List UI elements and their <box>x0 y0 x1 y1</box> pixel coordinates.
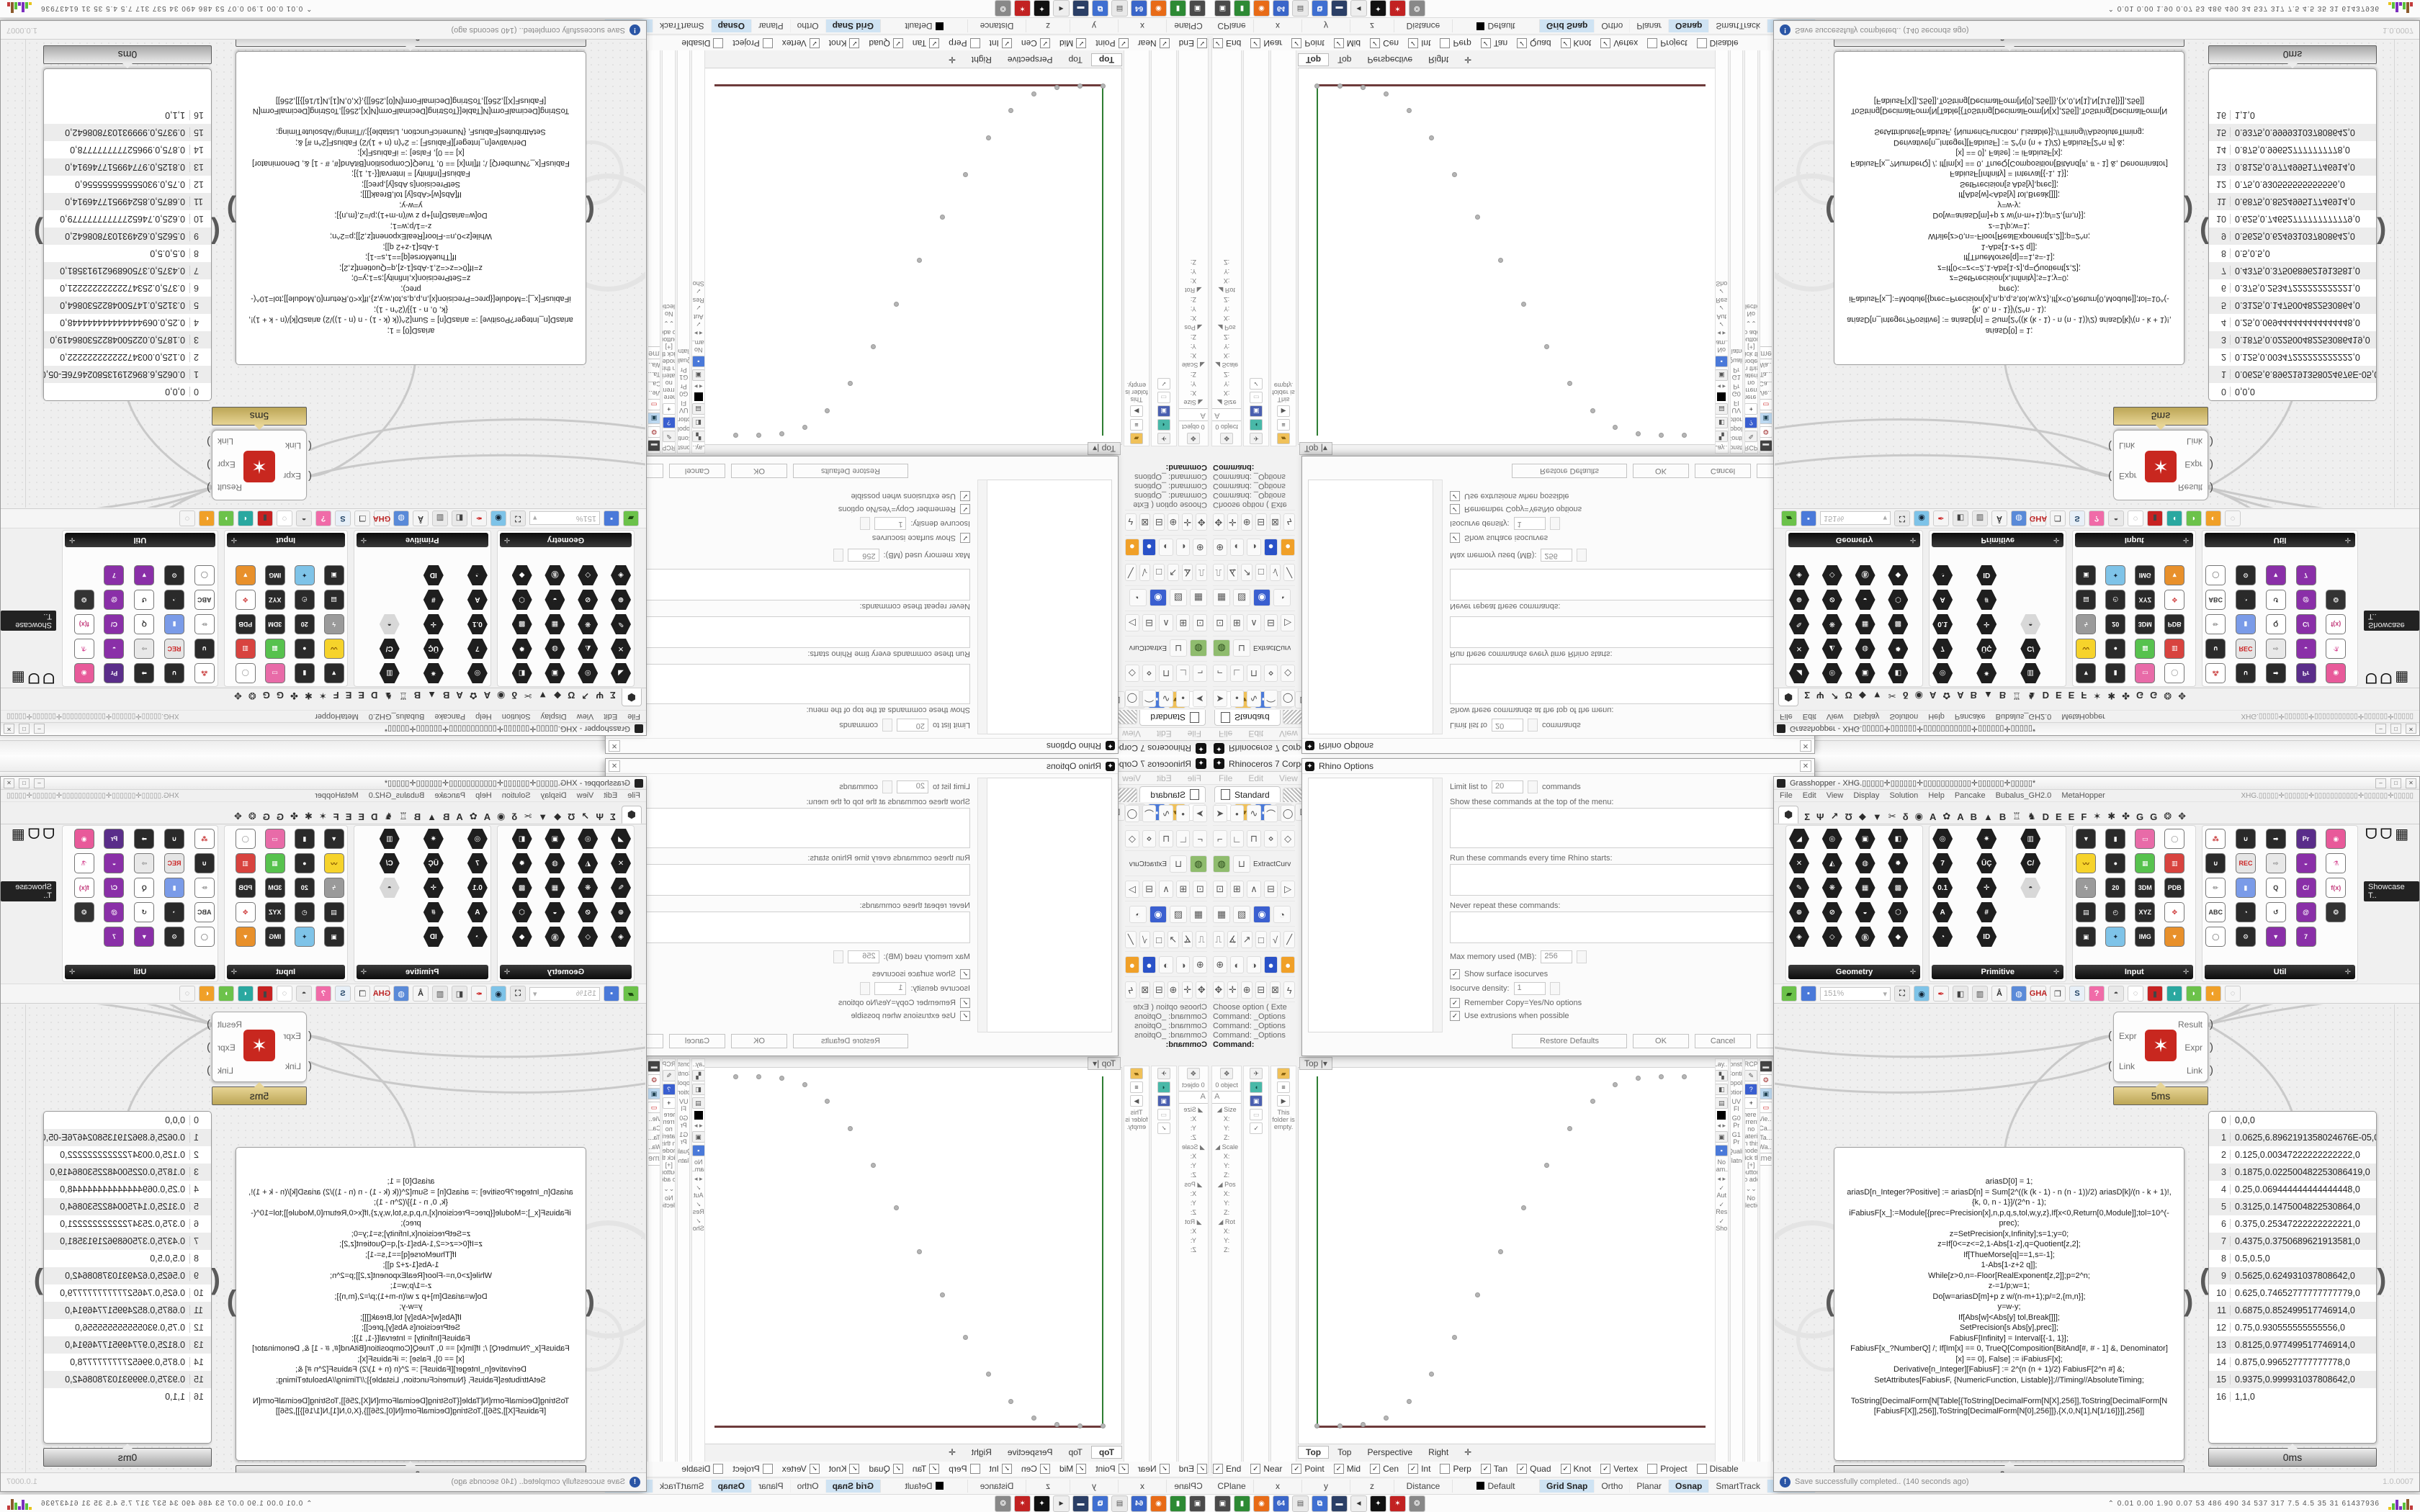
tab-plugin-mountain[interactable]: ▲ <box>1983 688 1994 702</box>
layer-list-icon[interactable]: ▤ <box>1715 403 1728 415</box>
use-extrusions-checkbox[interactable]: ✓ <box>960 1011 970 1021</box>
zoom-selected-icon[interactable]: ⊠ <box>1270 513 1281 531</box>
geometry-icon[interactable]: ◈ <box>1789 927 1809 947</box>
cancel-button[interactable]: Cancel <box>1695 464 1751 478</box>
corner-tool-icon[interactable]: ∟ <box>1230 830 1245 847</box>
primitive-icon[interactable]: ▥ <box>2020 829 2040 849</box>
line-dim-icon[interactable]: ╱ <box>1125 931 1137 948</box>
graph-mapper-icon[interactable]: 〰 <box>324 639 344 659</box>
panel-grip-close[interactable]: ) <box>34 216 43 248</box>
primitive-number-icon[interactable]: 7 <box>467 853 488 873</box>
undo-icon[interactable]: ↺ <box>134 902 154 922</box>
display-settings-icon[interactable]: ▬ <box>1072 1 1089 17</box>
open-document-icon[interactable]: ▰ <box>623 510 639 526</box>
fabius-data-point[interactable] <box>963 172 968 177</box>
camera-box-icon[interactable]: ▥ <box>1972 986 1988 1002</box>
cluster-icon[interactable]: ◯ <box>2205 565 2226 585</box>
new-viewport-icon[interactable]: ✛ <box>1457 1446 1479 1458</box>
graph-mapper-icon[interactable]: 〰 <box>2076 639 2096 659</box>
scribble-icon[interactable]: ✏ <box>2205 878 2226 898</box>
goggles-icon[interactable]: ᗜ <box>2380 827 2393 842</box>
section-size[interactable]: ◢ Size <box>1183 1106 1203 1113</box>
spiral-export-icon[interactable]: @ <box>2296 902 2316 922</box>
checkbox-icon[interactable]: ✓ <box>1481 1464 1491 1474</box>
fabius-data-point[interactable] <box>1544 344 1549 349</box>
checkbox-icon[interactable]: ✓ <box>1408 38 1418 48</box>
geometry-icon[interactable]: ◧ <box>512 829 532 849</box>
checkbox-icon[interactable]: ✓ <box>1002 1464 1012 1474</box>
name-box[interactable]: rame <box>647 346 661 359</box>
fabius-data-point[interactable] <box>1407 1399 1412 1404</box>
checkbox-icon[interactable]: ✓ <box>1160 38 1170 48</box>
sphere-dark-icon[interactable]: ◓ <box>296 510 312 526</box>
relay-icon[interactable]: ∪ <box>194 639 215 659</box>
data-row[interactable]: 110.6875,0.852499517746914,0 <box>44 193 211 210</box>
restore-defaults-button[interactable]: Restore Defaults <box>793 1034 908 1048</box>
primitive-icon[interactable]: ◎ <box>467 663 488 683</box>
checkbox-icon[interactable]: ✓ <box>1291 1464 1301 1474</box>
gh-menu-view[interactable]: View <box>1827 791 1844 800</box>
preview-mesh-icon[interactable]: ◧ <box>452 986 467 1002</box>
tab-plugin-fly[interactable]: ✤ <box>290 809 299 824</box>
data-row[interactable]: 10.0625,6.8962191358024676E-05,0 <box>44 1129 211 1146</box>
output-result[interactable]: Result <box>2178 482 2202 492</box>
open-document-icon[interactable]: ▰ <box>623 986 639 1002</box>
package-manager-icon[interactable]: ▮ <box>1234 1495 1250 1512</box>
calendar-icon[interactable]: 20 <box>2105 878 2125 898</box>
gh-menu-file[interactable]: File <box>1780 791 1793 800</box>
polygon-tool-icon[interactable]: ◇ <box>1281 665 1295 682</box>
display-panel-icon[interactable]: ▣ <box>1250 1095 1263 1107</box>
data-row[interactable]: 50.3125,0.1475004822530864,0 <box>44 1198 211 1215</box>
wire-globe-icon[interactable]: ⊕ <box>1213 539 1227 556</box>
abc-icon[interactable]: ABC <box>194 590 215 610</box>
rhino-command-history[interactable]: Choose option ( ExteCommand: _OptionsCom… <box>1119 462 1207 509</box>
tab-standard[interactable]: Standard <box>1214 710 1281 726</box>
input-grip[interactable]: ( <box>308 440 312 452</box>
camera-icon[interactable]: ▣ <box>647 413 660 424</box>
timer-icon[interactable]: ◔ <box>2236 902 2256 922</box>
zoom-level-select[interactable]: 151%▾ <box>1820 512 1891 526</box>
geometry-icon[interactable]: ⊘ <box>1822 902 1842 922</box>
select-tool-icon[interactable]: ➤ <box>1213 805 1227 822</box>
viewport-tab-perspective[interactable]: Perspective <box>1360 1446 1420 1458</box>
palette-icon[interactable]: ❂ <box>2326 590 2346 610</box>
checkbox-icon[interactable] <box>763 38 773 48</box>
screenshot-app-icon[interactable]: ▣ <box>1214 1495 1231 1512</box>
osnap-end[interactable]: ✓End <box>1179 38 1207 48</box>
checkbox-icon[interactable]: ✓ <box>1408 1464 1418 1474</box>
data-row[interactable]: 30.1875,0.022500482253086419,0 <box>44 1164 211 1181</box>
viewport-tab-top[interactable]: Top <box>1330 54 1358 66</box>
empty-swatch-icon[interactable]: ▭ <box>1157 1109 1170 1120</box>
gh-menu-bubalus_gh2.0[interactable]: Bubalus_GH2.0 <box>1996 791 2052 800</box>
patch-tool-icon[interactable]: ◔ <box>1129 589 1147 606</box>
polyline-tool-icon[interactable]: ⌐ <box>1193 830 1207 847</box>
group-label-input[interactable]: Input✛ <box>227 533 345 547</box>
fabius-data-point[interactable] <box>1452 1335 1457 1340</box>
data-row[interactable]: 30.1875,0.022500482253086419,0 <box>2209 331 2376 348</box>
cylinder-red-icon[interactable]: ▮ <box>2147 510 2163 526</box>
cylinder-red-icon[interactable]: ▮ <box>2147 986 2163 1002</box>
check-aut[interactable]: ✓ Aut <box>1716 1184 1727 1199</box>
geometry-icon[interactable]: ◧ <box>512 663 532 683</box>
osnap-disable[interactable]: Disable <box>1697 38 1739 48</box>
data-row[interactable]: 120.75,0.930555555555556,0 <box>2209 1319 2376 1336</box>
tree-scrollbar[interactable] <box>1433 778 1443 1032</box>
layer-color-icon[interactable]: ◧ <box>692 417 705 428</box>
geometry-icon[interactable]: ▩ <box>1888 878 1908 898</box>
file-pdb-icon[interactable]: PDB <box>236 878 256 898</box>
calendar-icon[interactable]: 20 <box>295 614 315 634</box>
gh-menu-solution[interactable]: Solution <box>1889 791 1918 800</box>
input-expr[interactable]: Expr <box>2119 471 2137 481</box>
data-row[interactable]: 00,0,0 <box>44 1112 211 1129</box>
move-tool-icon[interactable]: ⊡ <box>1213 881 1227 898</box>
primitive-hash-icon[interactable]: # <box>423 590 444 610</box>
palette-taskbar-icon[interactable]: ❂ <box>995 1495 1011 1512</box>
file-3dm-icon[interactable]: 3DM <box>265 878 285 898</box>
run-commands-listbox[interactable] <box>1450 616 1807 648</box>
cylinder-white-icon[interactable]: ◌ <box>277 986 292 1002</box>
gh-menu-help[interactable]: Help <box>1928 712 1945 721</box>
geometry-icon[interactable]: ⊘ <box>578 590 598 610</box>
fabius-data-point[interactable] <box>802 1082 807 1087</box>
array-tool-icon[interactable]: ⊞ <box>1176 614 1191 631</box>
geometry-icon[interactable]: ◆ <box>1888 927 1908 947</box>
premiere-export-icon[interactable]: Pr <box>104 829 124 849</box>
speaker-icon[interactable]: ◄ <box>1053 1 1070 17</box>
osnap-int[interactable]: ✓Int <box>1408 1464 1430 1474</box>
viewport-tab-top[interactable]: Top <box>1062 1446 1090 1458</box>
diamond-tool-icon[interactable]: ⋄ <box>1142 830 1157 847</box>
goggles-info-icon[interactable]: ᗜ <box>2365 670 2378 685</box>
name-box[interactable]: rame <box>647 1153 661 1166</box>
preview-eye-icon[interactable]: ◉ <box>1914 510 1930 526</box>
checkbox-icon[interactable]: ✓ <box>1600 1464 1610 1474</box>
corner-tool-icon[interactable]: ∟ <box>1176 830 1191 847</box>
tab-display[interactable]: ◉ <box>496 688 506 703</box>
circle-tool-icon[interactable]: ◯ <box>1125 690 1139 707</box>
selection-lasso-icon[interactable]: ◌ <box>179 510 195 526</box>
monitor-icon[interactable]: ▬ <box>1760 440 1773 451</box>
area-dim-icon[interactable]: □ <box>1153 564 1165 581</box>
data-row[interactable]: 140.875,0.996527777777778,0 <box>44 141 211 158</box>
wire-globe-icon[interactable]: ⊕ <box>1193 956 1207 973</box>
tab-plugin-b1[interactable]: B <box>1970 688 1978 702</box>
nav-arrows[interactable]: ◂ ▸ <box>694 383 703 390</box>
isocurves-checkbox[interactable]: ✓ <box>1450 533 1460 543</box>
checkbox-icon[interactable]: ✓ <box>1250 1464 1260 1474</box>
tab-plugin-shield[interactable]: ♖ <box>2012 688 2022 703</box>
status-layer-default[interactable]: Default <box>1453 19 1540 32</box>
fabius-data-point[interactable] <box>1567 381 1572 386</box>
geometry-icon[interactable]: ✎ <box>611 878 631 898</box>
output-link[interactable]: Link <box>2187 436 2202 446</box>
data-row[interactable]: 50.3125,0.1475004822530864,0 <box>2209 1198 2376 1215</box>
folder-icon[interactable]: ▰ <box>1130 433 1143 444</box>
tab-surface[interactable]: ◆ <box>553 809 562 824</box>
zoom-extents-icon[interactable]: ⛶ <box>510 510 526 526</box>
relay-icon[interactable]: ∪ <box>194 853 215 873</box>
primitive-icon[interactable]: ◎ <box>467 829 488 849</box>
corner-tool-icon[interactable]: ∟ <box>1176 665 1191 682</box>
primitive-string-icon[interactable]: ÜÇ <box>423 639 444 659</box>
geometry-icon[interactable]: ❋ <box>1822 614 1842 634</box>
toggle-icon[interactable]: ▮ <box>2105 663 2125 683</box>
zoom-extents-icon[interactable]: ⛶ <box>510 986 526 1002</box>
jug-teal-icon[interactable]: ◖ <box>2166 986 2182 1002</box>
help-sphere-icon[interactable]: ? <box>1744 1084 1757 1095</box>
layer-swatch[interactable] <box>694 1111 703 1120</box>
primitive-icon[interactable]: ▥ <box>380 829 400 849</box>
fabius-data-point[interactable] <box>733 1074 738 1079</box>
geometry-icon[interactable]: ▣ <box>1855 829 1875 849</box>
curve-tool-icon[interactable]: ∿ <box>1159 805 1173 822</box>
output-grip[interactable]: ) <box>207 482 210 494</box>
move-tool-icon[interactable]: ⊡ <box>1193 614 1207 631</box>
patch-tool-icon[interactable]: ◔ <box>1273 906 1291 923</box>
input-grip[interactable]: ( <box>2108 1030 2112 1042</box>
group-label-primitive[interactable]: Primitive✛ <box>357 965 488 979</box>
rhino-command-history[interactable]: Choose option ( ExteCommand: _OptionsCom… <box>1119 1003 1207 1050</box>
input-expr[interactable]: Expr <box>283 471 301 481</box>
monitor-icon[interactable]: ▬ <box>1760 1061 1773 1072</box>
speaker-icon[interactable]: ◄ <box>1350 1495 1367 1512</box>
viewport-title-chip[interactable]: Top |▾ <box>1299 442 1332 455</box>
package-manager-icon[interactable]: ▮ <box>1170 1495 1186 1512</box>
cherry-picker-icon[interactable]: ⁂ <box>2205 829 2226 849</box>
use-extrusions-checkbox[interactable]: ✓ <box>1450 491 1460 501</box>
fabius-data-point[interactable] <box>1429 135 1434 140</box>
geometry-icon[interactable]: ◇ <box>1822 927 1842 947</box>
viewport-tab-top[interactable]: Top <box>1298 1446 1329 1459</box>
data-row[interactable]: 150.9375,0.999931037808642,0 <box>2209 1371 2376 1388</box>
osnap-end[interactable]: ✓End <box>1213 38 1241 48</box>
premiere-export-icon[interactable]: Pr <box>104 663 124 683</box>
select-tool-icon[interactable]: ➤ <box>1193 690 1207 707</box>
globe-render-icon[interactable]: ◍ <box>1190 855 1207 873</box>
data-row[interactable]: 130.8125,0.977499517746914,0 <box>2209 158 2376 176</box>
import-icon[interactable]: ▼ <box>324 663 344 683</box>
primitive-icon[interactable]: ◔ <box>1932 565 1953 585</box>
tab-plugin-d[interactable]: D <box>370 688 378 702</box>
section-pos[interactable]: ◢ Pos <box>1218 1181 1236 1188</box>
geometry-icon[interactable]: ▣ <box>1855 663 1875 683</box>
output-grip[interactable]: ) <box>207 459 210 471</box>
calendar-icon[interactable]: 20 <box>295 878 315 898</box>
primitive-decimal-icon[interactable]: 0.1 <box>1932 878 1953 898</box>
geometry-icon[interactable]: ▣ <box>544 663 565 683</box>
fabius-data-point[interactable] <box>986 1372 991 1377</box>
mathematica-component[interactable]: ( ( Expr Link ✶ Result Expr Link ) ) ) <box>212 1012 307 1082</box>
primitive-hash-icon[interactable]: # <box>1976 902 1996 922</box>
colour-wheel-icon[interactable]: ◯ <box>236 663 256 683</box>
data-row[interactable]: 70.4375,0.3750689621913581,0 <box>2209 1233 2376 1250</box>
gh-menu-display[interactable]: Display <box>541 712 567 721</box>
color-wheel-icon[interactable]: ❂ <box>1760 426 1773 438</box>
preview-eye-icon[interactable]: ◉ <box>490 510 506 526</box>
primitive-guid-icon[interactable]: ID <box>423 565 444 585</box>
tab-vector[interactable]: ↗ <box>1830 809 1839 824</box>
cherry-picker-icon[interactable]: ⁂ <box>2205 663 2226 683</box>
checkbox-icon[interactable]: ✓ <box>1250 38 1260 48</box>
fabius-data-point[interactable] <box>1337 84 1343 89</box>
osnap-knot[interactable]: ✓Knot <box>1561 1464 1592 1474</box>
tab-standard[interactable]: Standard <box>1139 786 1206 802</box>
input-grip[interactable]: ( <box>308 470 312 482</box>
output-result[interactable]: Result <box>2178 1020 2202 1030</box>
flask-icon[interactable]: ⚗ <box>2326 639 2346 659</box>
mathematica-component[interactable]: ( ( Expr Link ✶ Result Expr Link ) ) ) <box>212 430 307 500</box>
zoom-in-icon[interactable]: ⊕ <box>1241 981 1252 999</box>
file-img-icon[interactable]: IMG <box>265 565 285 585</box>
fabius-data-point[interactable] <box>1682 1074 1687 1079</box>
maximize-icon[interactable]: □ <box>2390 778 2401 788</box>
colour-wheel-icon[interactable]: ◯ <box>236 829 256 849</box>
palette-taskbar-icon[interactable]: ❂ <box>995 1 1011 17</box>
mesh-colour-icon[interactable]: ✦ <box>295 927 315 947</box>
tab-plugin-wheel[interactable]: ❂ <box>2163 688 2172 703</box>
select-tool-icon[interactable]: ➤ <box>1193 805 1207 822</box>
data-row[interactable]: 150.9375,0.999931037808642,0 <box>2209 124 2376 141</box>
scale-tool-icon[interactable]: ⊟ <box>1142 614 1157 631</box>
expander-icon[interactable]: ⌄⌄ <box>1746 320 1757 327</box>
fabius-data-point[interactable] <box>779 1076 784 1081</box>
never-repeat-listbox[interactable] <box>613 912 970 943</box>
render-mesh-icon[interactable]: ◖ <box>1157 419 1170 431</box>
paint-drip-icon[interactable]: ▼ <box>2164 565 2184 585</box>
import-icon[interactable]: ▼ <box>2076 663 2096 683</box>
limit-input[interactable]: 20 <box>897 719 928 732</box>
grasshopper-canvas[interactable]: ( ( Expr Link ✶ Result Expr Link ) ) ) 5… <box>2 1004 645 1472</box>
check-aut[interactable]: ✓ Aut <box>694 1184 704 1199</box>
gh-menu-pancake[interactable]: Pancake <box>434 712 465 721</box>
abc-icon[interactable]: ABC <box>2205 590 2226 610</box>
osnap-vertex[interactable]: ✓Vertex <box>782 1464 820 1474</box>
section-pos[interactable]: ◢ Pos <box>1184 324 1202 331</box>
primitive-sphere-icon[interactable]: ◓ <box>2020 614 2040 634</box>
axes-icon[interactable]: Å <box>1991 510 2007 526</box>
geometry-icon[interactable]: ▩ <box>512 878 532 898</box>
raytraced-sphere-icon[interactable]: ● <box>1281 956 1295 973</box>
osnap-perp[interactable]: Perp <box>1440 38 1471 48</box>
paint-tool-icon[interactable]: ✎ <box>663 431 676 442</box>
console-export-icon[interactable]: C/ <box>2296 878 2316 898</box>
geometry-icon[interactable]: ▣ <box>544 829 565 849</box>
tab-mesh[interactable]: ▼ <box>1872 688 1883 702</box>
preview-mesh-icon[interactable]: ◧ <box>1953 510 1968 526</box>
point-tool-icon[interactable]: • <box>1176 805 1191 822</box>
zoom-level-select[interactable]: 151%▾ <box>529 512 600 526</box>
geometry-icon[interactable]: ◆ <box>512 927 532 947</box>
nav-arrows[interactable]: ◂ ▸ <box>1717 330 1726 337</box>
data-row[interactable]: 40.25,0.069444444444444448,0 <box>44 314 211 331</box>
memory-input[interactable]: 256 <box>848 950 879 963</box>
check-aut[interactable]: ✓ Aut <box>1716 313 1727 328</box>
osnap-end[interactable]: ✓End <box>1179 1464 1207 1474</box>
data-row[interactable]: 90.5625,0.624931037808642,0 <box>2209 228 2376 245</box>
data-row[interactable]: 40.25,0.069444444444444448,0 <box>2209 1181 2376 1198</box>
expand-group-icon[interactable]: ✛ <box>2053 968 2059 976</box>
viewport-tab-perspective[interactable]: Perspective <box>1360 54 1420 66</box>
zoom-selected-icon[interactable]: ⊠ <box>1139 981 1151 999</box>
zoom-extents-icon[interactable]: ⛶ <box>1894 510 1910 526</box>
primitive-decimal-icon[interactable]: 0.1 <box>467 878 488 898</box>
primitive-hash-icon[interactable]: # <box>423 902 444 922</box>
osnap-point[interactable]: ✓Point <box>1291 38 1324 48</box>
primitive-guid-icon[interactable]: ID <box>423 927 444 947</box>
file-img-icon[interactable]: IMG <box>265 927 285 947</box>
gh-menu-display[interactable]: Display <box>541 791 567 800</box>
new-viewport-icon[interactable]: ✛ <box>1457 54 1479 66</box>
tab-plugin-flower[interactable]: ✿ <box>1942 688 1951 703</box>
osnap-int[interactable]: ✓Int <box>990 1464 1012 1474</box>
jump-icon[interactable]: ∪ <box>2236 663 2256 683</box>
graph-mapper-icon[interactable]: 〰 <box>2076 853 2096 873</box>
geometry-icon[interactable]: ◍ <box>1855 853 1875 873</box>
primitive-icon[interactable]: ✷ <box>423 663 444 683</box>
colour-bars-icon[interactable]: ▥ <box>236 853 256 873</box>
name-box[interactable]: rame <box>1760 1153 1773 1166</box>
geometry-icon[interactable]: ◒ <box>1855 902 1875 922</box>
toggle-ortho[interactable]: Ortho <box>1595 1480 1630 1493</box>
tab-plugin-statue[interactable]: ✥ <box>2177 688 2187 703</box>
trigger-icon[interactable]: ⚙ <box>164 565 184 585</box>
gumball-icon[interactable]: ✥ <box>1220 1068 1233 1079</box>
toggle-osnap[interactable]: Osnap <box>711 1480 751 1493</box>
fabius-data-point[interactable] <box>1031 91 1036 96</box>
area-dim-icon[interactable]: □ <box>1255 931 1267 948</box>
select-tool-icon[interactable]: ➤ <box>1213 690 1227 707</box>
run-commands-listbox[interactable] <box>613 864 970 896</box>
scale-tool-icon[interactable]: ⊟ <box>1142 881 1157 898</box>
camera-icon[interactable]: ▣ <box>1760 413 1773 424</box>
viewport-menu-arrow-icon[interactable]: |▾ <box>1321 1058 1327 1068</box>
rectangle-tool-icon[interactable]: ⊓ <box>1247 830 1261 847</box>
checkbox-icon[interactable]: ✓ <box>893 1464 903 1474</box>
list-view-icon[interactable]: ≡ <box>1130 419 1143 431</box>
minimize-icon[interactable]: – <box>34 778 45 788</box>
checkbox-icon[interactable]: ✓ <box>1040 38 1050 48</box>
screenshot-app-icon[interactable]: ▣ <box>1189 1495 1206 1512</box>
tree-scrollbar[interactable] <box>977 778 987 1032</box>
zoom-extents-icon[interactable]: ✛ <box>1227 981 1239 999</box>
geometry-icon[interactable]: ◇ <box>1822 565 1842 585</box>
status-layer-default[interactable]: Default <box>880 1480 967 1493</box>
geometry-icon[interactable]: ▦ <box>1855 614 1875 634</box>
panel-icon[interactable]: ▣ <box>2076 565 2096 585</box>
output-link[interactable]: Link <box>218 1066 233 1076</box>
geometry-icon[interactable]: ▦ <box>544 614 565 634</box>
status-layer-default[interactable]: Default <box>1453 1480 1540 1493</box>
check-sho[interactable]: ✓ Sho <box>1716 1218 1727 1232</box>
osnap-point[interactable]: ✓Point <box>1095 38 1128 48</box>
section-scale[interactable]: ◢ Scale <box>1182 361 1205 369</box>
arc-tool-icon[interactable]: ⌒ <box>1264 805 1278 822</box>
data-row[interactable]: 00,0,0 <box>2209 1112 2376 1129</box>
search-icon[interactable]: S <box>2069 986 2085 1002</box>
checker-icon[interactable]: ▦ <box>2135 853 2155 873</box>
section-scale[interactable]: ◢ Scale <box>1215 361 1238 369</box>
zoom-extents-icon[interactable]: ✛ <box>1182 981 1193 999</box>
panel-grip-open[interactable]: ( <box>211 1264 220 1296</box>
mathematica-component[interactable]: ( ( Expr Link ✶ Result Expr Link ) ) ) <box>2113 1012 2208 1082</box>
zoom-window-icon[interactable]: ⊟ <box>1255 513 1267 531</box>
geometry-icon[interactable]: ◇ <box>578 927 598 947</box>
primitive-icon[interactable]: ◎ <box>1932 829 1953 849</box>
tab-plugin-g2[interactable]: G <box>2149 688 2158 702</box>
